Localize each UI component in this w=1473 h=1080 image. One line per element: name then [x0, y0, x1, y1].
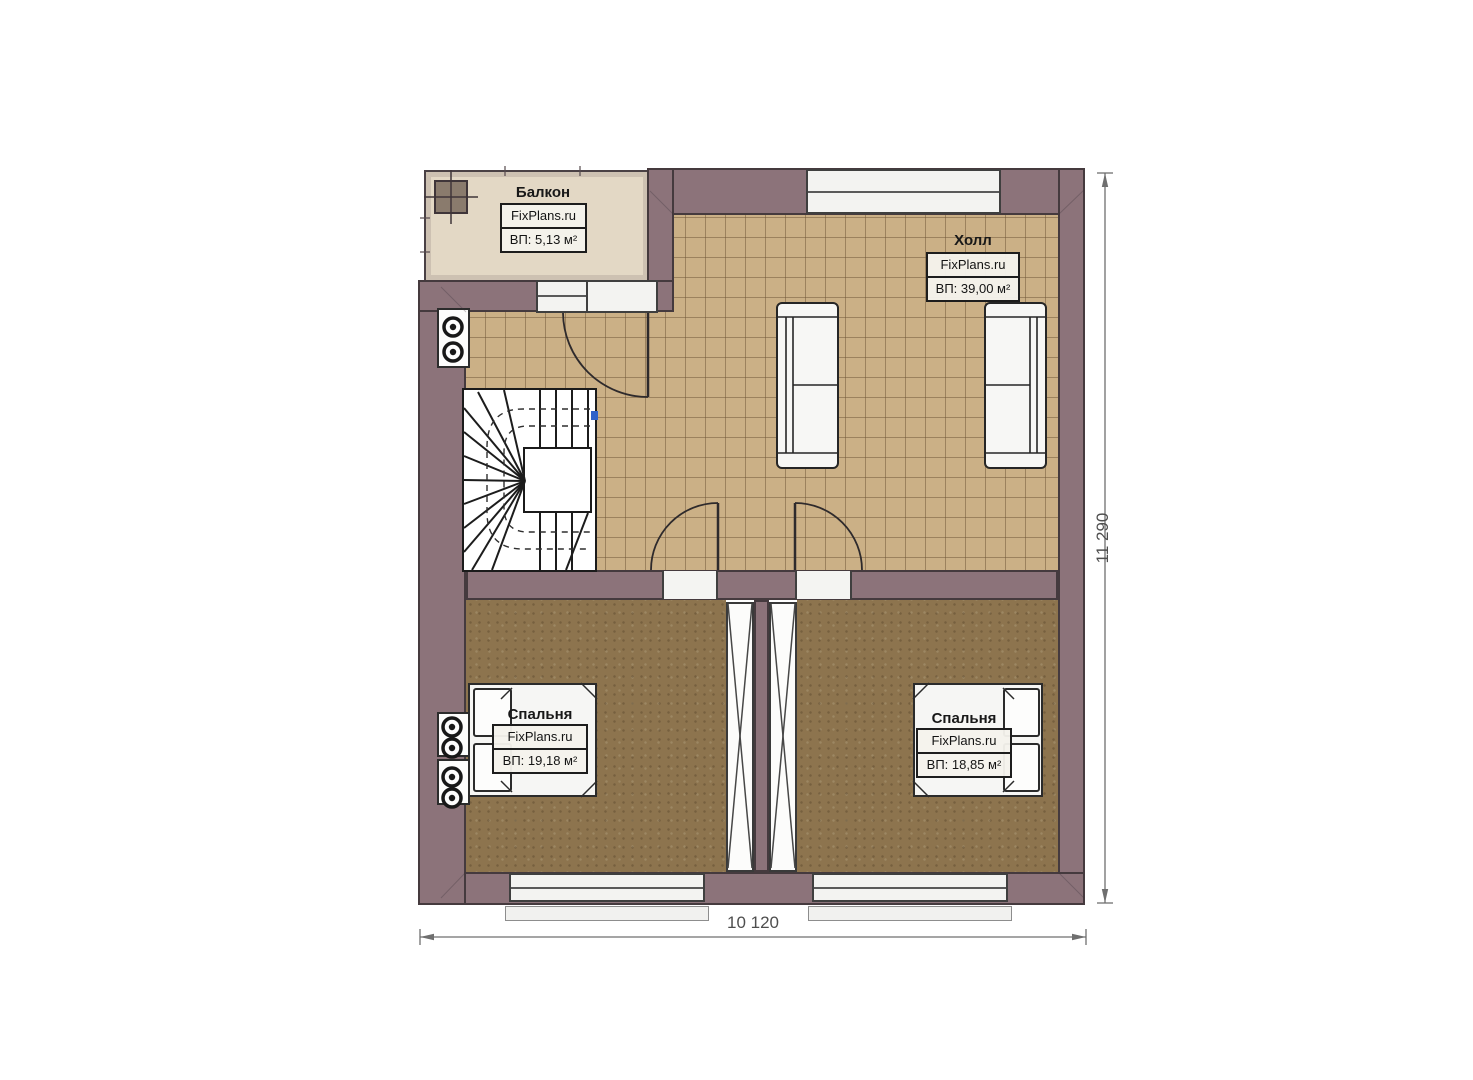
dimension-height-text: 11 290 [1093, 503, 1113, 573]
bedroom-left-window [509, 873, 705, 902]
bedroom-right-window-sill [808, 906, 1012, 921]
window-midline [814, 887, 1006, 889]
balcony-column [434, 180, 468, 214]
vent-shaft-hall [437, 308, 470, 368]
balcony-door-window [536, 280, 658, 313]
bedroom-right-door-opening [795, 571, 852, 599]
hall-label-source: FixPlans.ru [928, 254, 1018, 276]
left-wall [418, 280, 466, 905]
bedroom-left-label-box: FixPlans.ru ВП: 19,18 м² [492, 724, 588, 774]
balcony-label-source: FixPlans.ru [502, 205, 585, 227]
bedroom-left-label-title: Спальня [490, 706, 590, 723]
balcony-door-divider [586, 282, 588, 311]
dimension-width-text: 10 120 [700, 913, 806, 933]
hall-label-area: ВП: 39,00 м² [928, 276, 1018, 300]
window-midline [808, 191, 999, 193]
bedroom-left-window-sill [505, 906, 709, 921]
bedroom-right-label-box: FixPlans.ru ВП: 18,85 м² [916, 728, 1012, 778]
bedroom-right-window [812, 873, 1008, 902]
hall-bedroom-wall [466, 570, 1058, 600]
bedroom-right-label-title: Спальня [914, 710, 1014, 727]
hall-top-window [806, 169, 1001, 214]
closet-right-strip [769, 602, 797, 872]
balcony-label-area: ВП: 5,13 м² [502, 227, 585, 251]
closet-center-wall [754, 600, 769, 872]
vent-shaft-bedroom-b [437, 759, 470, 805]
bedroom-left-label-area: ВП: 19,18 м² [494, 748, 586, 772]
floor-plan-canvas: Балкон FixPlans.ru ВП: 5,13 м² Холл FixP… [0, 0, 1473, 1080]
right-wall [1058, 168, 1085, 905]
balcony-label-title: Балкон [493, 184, 593, 201]
hall-label-box: FixPlans.ru ВП: 39,00 м² [926, 252, 1020, 302]
bedroom-left-label-source: FixPlans.ru [494, 726, 586, 748]
bedroom-right-label-area: ВП: 18,85 м² [918, 752, 1010, 776]
balcony-window-midline [538, 295, 586, 297]
bedroom-right-label-source: FixPlans.ru [918, 730, 1010, 752]
vent-shaft-bedroom-a [437, 712, 470, 757]
hall-label-title: Холл [923, 232, 1023, 249]
closet-left-strip [726, 602, 754, 872]
window-midline [511, 887, 703, 889]
bedroom-left-door-opening [662, 571, 718, 599]
stair-landing-void [523, 447, 592, 513]
balcony-label-box: FixPlans.ru ВП: 5,13 м² [500, 203, 587, 253]
